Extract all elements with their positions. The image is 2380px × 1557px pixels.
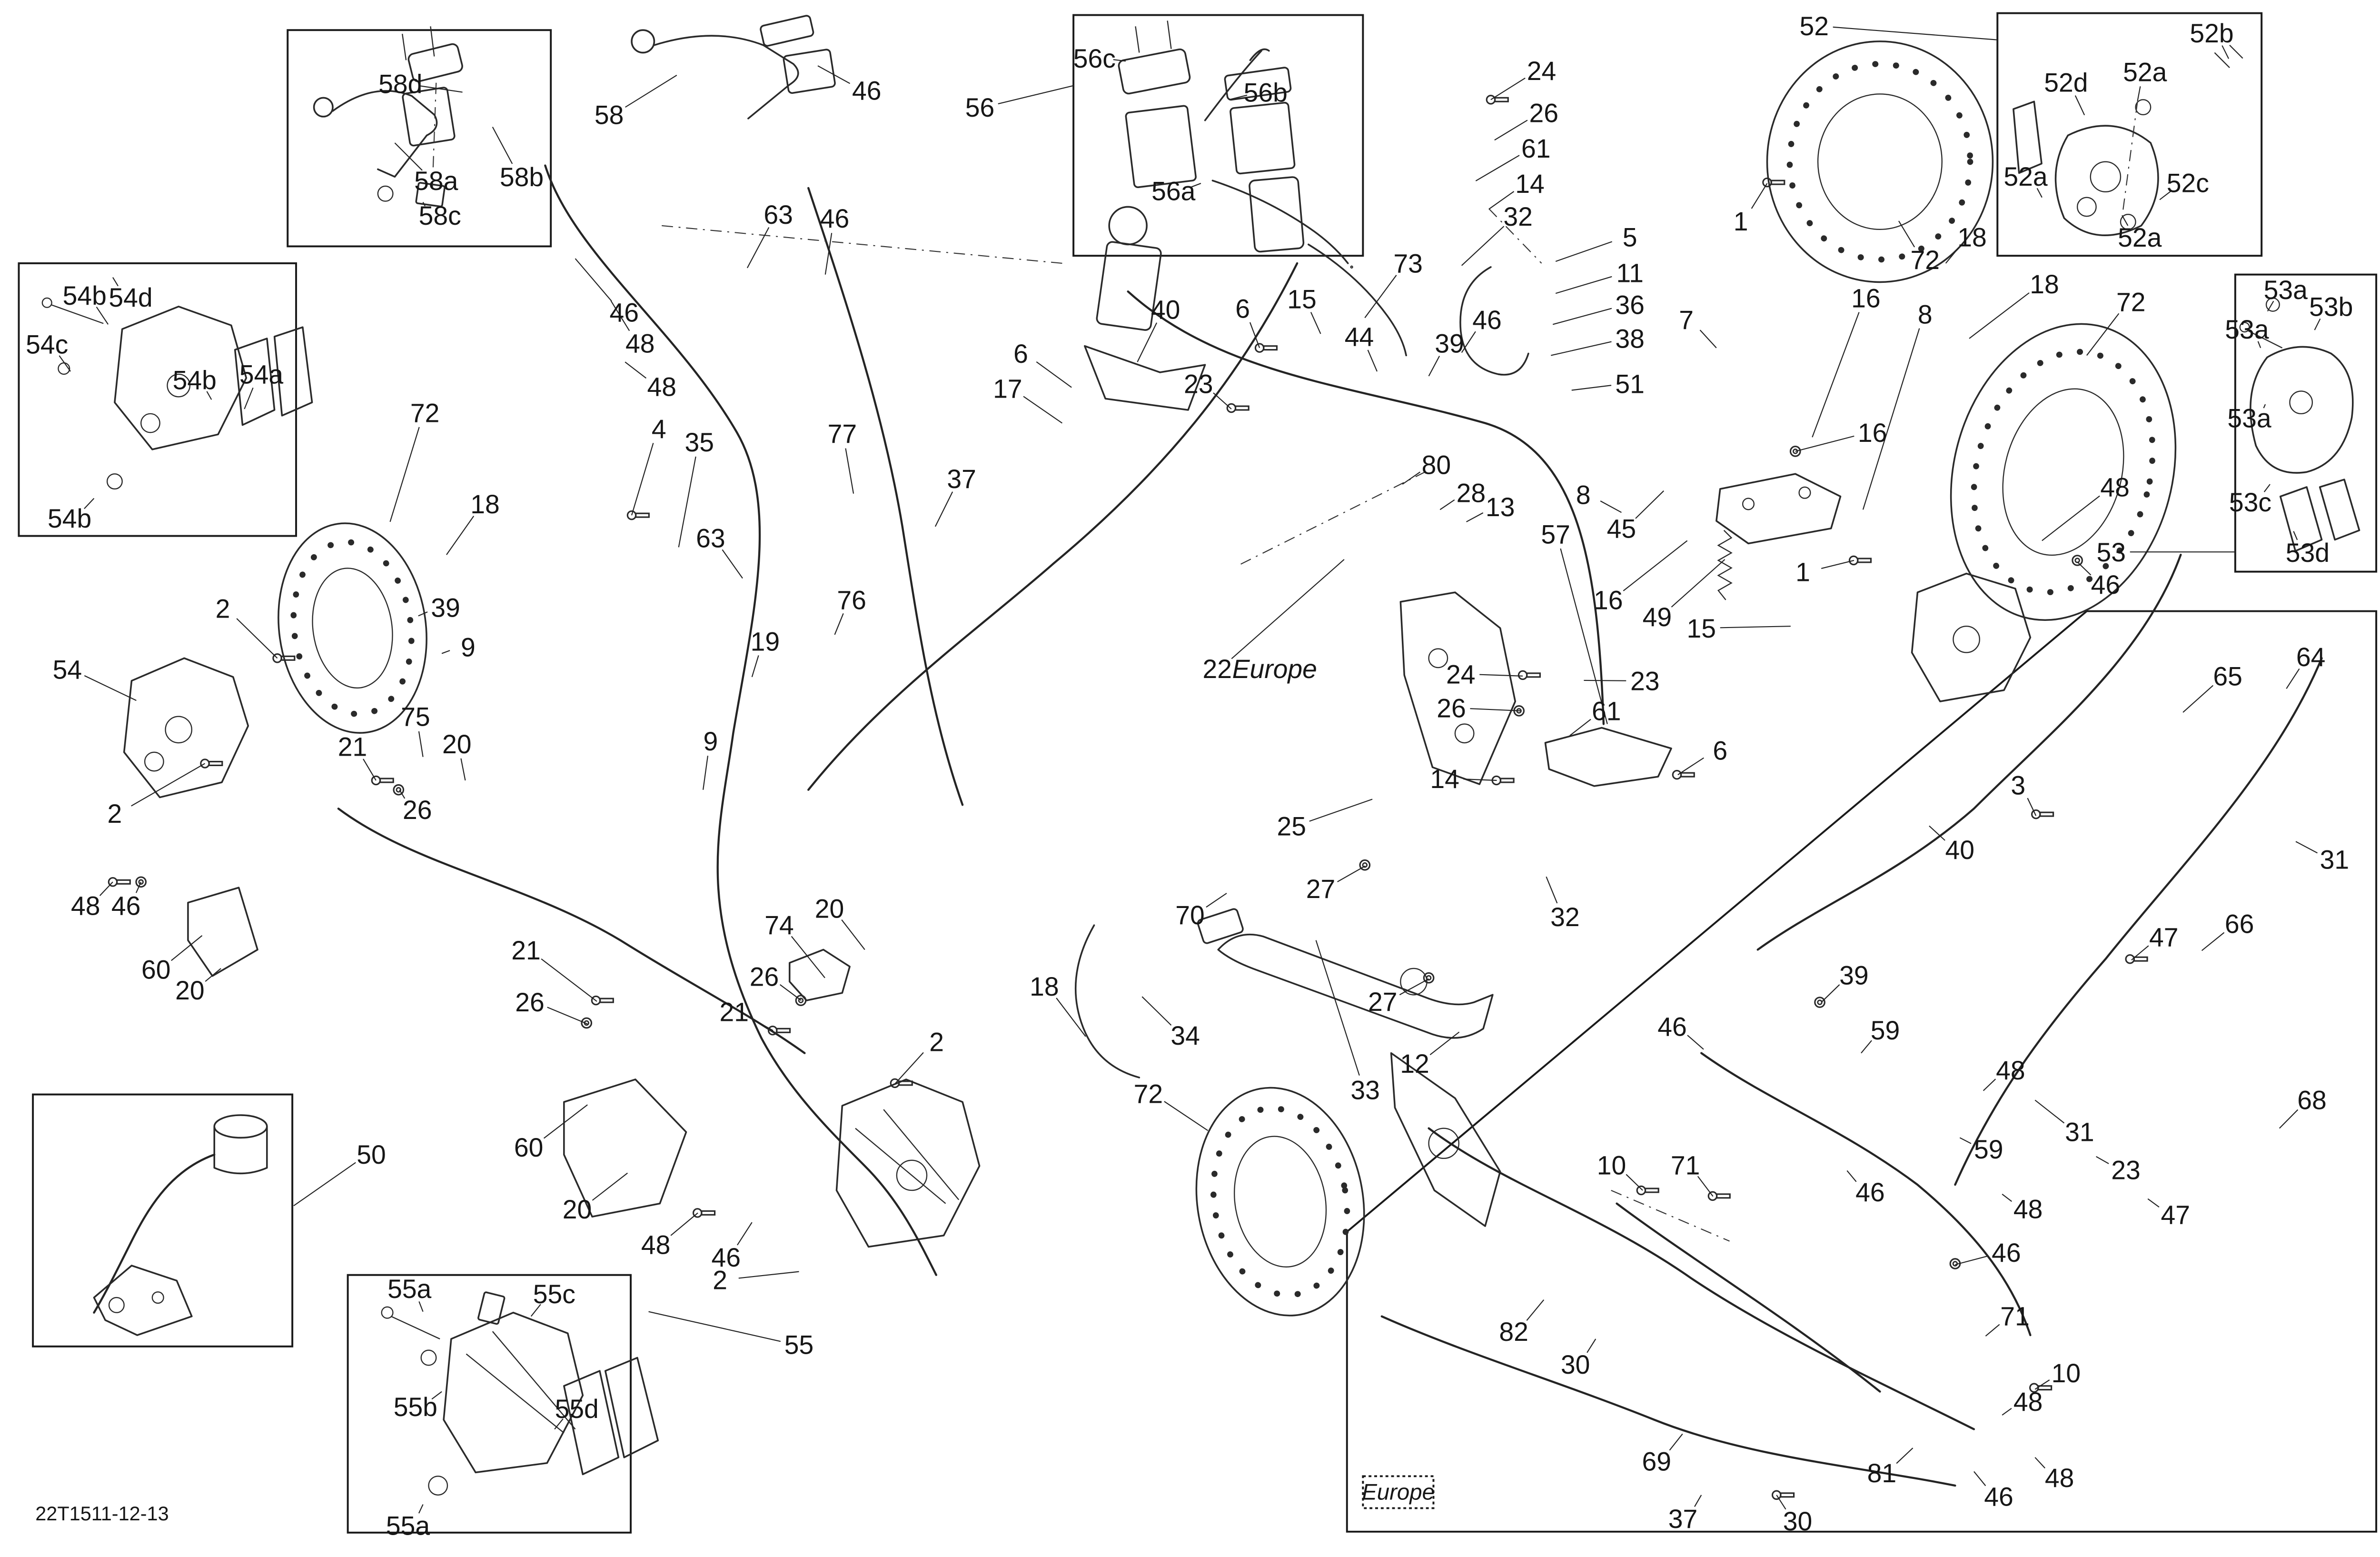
- callout-26-85: 26: [1529, 99, 1559, 128]
- callout-55b-130: 55b: [394, 1392, 437, 1422]
- callout-45-67: 45: [1607, 514, 1636, 544]
- callout-55d-131: 55d: [555, 1394, 599, 1424]
- leader-line-55-109: [649, 1312, 781, 1341]
- callout-57-68: 57: [1541, 519, 1570, 549]
- leader-line-76-37: [835, 613, 843, 635]
- europe-box-label: Europe: [1362, 1480, 1435, 1505]
- callout-54d-7: 54d: [109, 283, 152, 312]
- callout-39-25: 39: [431, 593, 460, 622]
- callout-58b-2: 58b: [500, 162, 544, 192]
- callout-12-92: 12: [1400, 1049, 1429, 1078]
- leader-line-80-50: [1402, 472, 1420, 484]
- leader-line-8-165: [1600, 501, 1621, 512]
- callout-54b-11: 54b: [48, 504, 91, 533]
- callout-6-43: 6: [1235, 294, 1250, 323]
- callout-14-87: 14: [1515, 169, 1545, 199]
- callout-53c-126: 53c: [2229, 488, 2271, 517]
- leader-line-56-112: [998, 86, 1074, 104]
- leader-line-72-65: [2087, 313, 2119, 355]
- callout-10-157: 10: [2052, 1358, 2081, 1388]
- callout-52d-118: 52d: [2044, 68, 2088, 98]
- callout-17-41: 17: [993, 374, 1022, 403]
- callout-6-76: 6: [1713, 736, 1727, 766]
- callout-2-108: 2: [713, 1265, 727, 1295]
- leader-line-46-81: [2077, 562, 2091, 575]
- callout-4-32: 4: [652, 414, 666, 444]
- callout-11-54: 11: [1616, 258, 1643, 288]
- leader-line-54-12: [84, 676, 136, 700]
- callout-38-56: 38: [1615, 324, 1645, 354]
- leader-line-46-107: [737, 1222, 752, 1245]
- callout-24-72: 24: [1446, 660, 1476, 689]
- front-left-caliper: [124, 658, 248, 797]
- spring-49: [1718, 530, 1732, 600]
- callout-73-49: 73: [1393, 249, 1423, 279]
- leader-line-9-39: [703, 756, 708, 789]
- callout-51-57: 51: [1615, 369, 1645, 399]
- leader-line-26-98: [547, 1007, 588, 1024]
- callout-46-20: 46: [111, 891, 141, 920]
- callout-63-34: 63: [696, 523, 725, 553]
- leader-line-74-101: [792, 936, 825, 978]
- callout-52a-121: 52a: [2003, 162, 2047, 191]
- callout-47-150: 47: [2161, 1200, 2191, 1229]
- leader-line-18-24: [446, 516, 474, 555]
- callout-26-74: 26: [1437, 694, 1466, 723]
- callout-58c-3: 58c: [419, 201, 461, 230]
- callout-30-155: 30: [1561, 1350, 1590, 1379]
- callout-20-17: 20: [442, 729, 472, 759]
- inset-50-content: [94, 1115, 267, 1335]
- callout-9-26: 9: [461, 632, 476, 662]
- leader-line-36-55: [1553, 309, 1612, 325]
- callout-27-89: 27: [1306, 874, 1336, 904]
- callout-53a-125: 53a: [2227, 403, 2271, 433]
- leader-line-31-144: [2035, 1100, 2064, 1123]
- callout-82-154: 82: [1499, 1317, 1528, 1347]
- leader-line-2-105: [895, 1053, 923, 1084]
- callout-54-12: 54: [53, 655, 82, 685]
- leader-line-31-136: [2296, 841, 2317, 853]
- brake-system-exploded-diagram: 58d58a58b58c584654b54d54c54b54a54b542221…: [0, 0, 2380, 1538]
- callout-72-63: 72: [1910, 245, 1940, 275]
- callout-25-88: 25: [1277, 811, 1307, 841]
- callout-46-140: 46: [1657, 1012, 1687, 1041]
- callout-32-83: 32: [1503, 202, 1533, 231]
- callout-31-144: 31: [2065, 1118, 2094, 1147]
- leader-line-15-71: [1720, 626, 1791, 628]
- part-code: 22T1511-12-13: [35, 1502, 169, 1525]
- callout-56-112: 56: [965, 93, 994, 122]
- callout-81-162: 81: [1867, 1458, 1897, 1488]
- callout-46-153: 46: [1992, 1238, 2021, 1268]
- callout-labels: 58d58a58b58c584654b54d54c54b54a54b542221…: [26, 11, 2353, 1538]
- callout-55c-129: 55c: [533, 1279, 575, 1309]
- callout-50-110: 50: [357, 1140, 386, 1169]
- leader-line-51-57: [1572, 385, 1611, 390]
- callout-33-93: 33: [1350, 1075, 1380, 1105]
- callout-39-46: 39: [1435, 329, 1464, 359]
- leader-line-38-56: [1551, 342, 1611, 356]
- leader-line-71-152: [1698, 1176, 1713, 1196]
- leader-line-13-52: [1467, 513, 1483, 522]
- callout-48-79: 48: [2100, 473, 2129, 502]
- leader-line-48-158: [2002, 1408, 2012, 1415]
- leader-line-15-44: [1311, 312, 1321, 334]
- callout-49-70: 49: [1643, 602, 1672, 632]
- brake-pedal: [1197, 908, 1493, 1038]
- leader-line-25-88: [1309, 799, 1372, 821]
- inset-box-caliper-52: [1997, 13, 2261, 256]
- callout-18-96: 18: [1030, 972, 1059, 1001]
- leader-line-19-36: [752, 655, 759, 677]
- callout-59-142: 59: [1871, 1016, 1900, 1045]
- callout-19-36: 19: [751, 627, 780, 657]
- callout-52a-117: 52a: [2123, 58, 2167, 87]
- seal-34: [1076, 925, 1140, 1078]
- callout-22-166: 22: [1203, 654, 1232, 684]
- callout-36-55: 36: [1615, 290, 1645, 320]
- leader-line-48-164: [2035, 1457, 2045, 1468]
- callout-58-4: 58: [595, 100, 624, 130]
- leader-line-60-21: [171, 936, 202, 961]
- brake-hoses: [338, 166, 2322, 1486]
- leader-line-72-95: [1164, 1101, 1208, 1130]
- callout-46-148: 46: [1855, 1178, 1885, 1207]
- leader-line-2-13: [237, 619, 277, 658]
- callout-31-136: 31: [2320, 845, 2349, 875]
- leader-line-33-93: [1316, 940, 1359, 1076]
- callout-13-52: 13: [1486, 492, 1515, 522]
- leader-line-46-140: [1687, 1035, 1704, 1049]
- callout-54c-8: 54c: [26, 329, 68, 359]
- callout-6-40: 6: [1013, 339, 1028, 369]
- leader-line-39-141: [1821, 985, 1839, 1002]
- leader-line-20-104: [842, 920, 865, 950]
- callout-27-91: 27: [1368, 987, 1398, 1017]
- leader-line-66-139: [2202, 933, 2224, 951]
- callout-20-104: 20: [815, 894, 844, 923]
- callout-56c-113: 56c: [1073, 44, 1116, 73]
- leader-line-24-72: [1479, 675, 1523, 676]
- leader-line-70-90: [1206, 893, 1227, 907]
- leader-line-52-111: [1833, 27, 1998, 40]
- leader-line-58-4: [625, 75, 677, 107]
- callout-37-38: 37: [947, 464, 976, 494]
- callout-58d-0: 58d: [378, 69, 422, 99]
- callout-48-158: 48: [2013, 1387, 2043, 1417]
- leader-line-37-38: [935, 492, 952, 527]
- callout-76-37: 76: [837, 586, 866, 615]
- leader-line-52a-117: [2138, 86, 2141, 101]
- callout-5-53: 5: [1623, 222, 1637, 252]
- callout-26-18: 26: [403, 795, 432, 825]
- callout-69-159: 69: [1642, 1447, 1672, 1476]
- leader-line-5-53: [1556, 242, 1612, 261]
- callout-30-161: 30: [1783, 1507, 1813, 1536]
- callout-10-151: 10: [1597, 1150, 1626, 1180]
- leader-line-49-70: [1671, 559, 1725, 607]
- callout-20-22: 20: [175, 976, 205, 1005]
- callout-26-98: 26: [515, 988, 545, 1017]
- callout-55a-128: 55a: [387, 1274, 431, 1304]
- callout-39-141: 39: [1839, 961, 1869, 990]
- callout-44-45: 44: [1345, 322, 1374, 352]
- callout-52a-120: 52a: [2118, 223, 2162, 252]
- europe-section-outline: [1347, 611, 2376, 1532]
- leader-line-27-89: [1338, 866, 1365, 882]
- callout-54a-10: 54a: [239, 360, 283, 389]
- callout-72-23: 72: [410, 399, 440, 428]
- leader-line-9-26: [442, 650, 450, 653]
- callout-26-102: 26: [750, 962, 779, 991]
- callout-56a-115: 56a: [1151, 177, 1195, 206]
- leader-line-46-148: [1847, 1171, 1856, 1182]
- callout-9-39: 9: [704, 727, 718, 756]
- leader-line-60-99: [544, 1105, 588, 1138]
- leader-line-1-59: [1752, 183, 1767, 209]
- leader-line-73-49: [1365, 275, 1396, 318]
- callout-21-97: 21: [511, 936, 541, 965]
- right-caliper: [1912, 574, 2031, 702]
- leader-line-32-83: [1462, 226, 1504, 266]
- callout-52-111: 52: [1799, 11, 1829, 41]
- leader-line-22-166: [1231, 559, 1344, 659]
- leader-line-26-102: [780, 985, 802, 1000]
- callout-60-99: 60: [514, 1133, 544, 1162]
- leader-line-35-33: [679, 457, 696, 547]
- leader-line-52d-118: [2075, 96, 2084, 115]
- leader-line-20-100: [592, 1173, 627, 1200]
- callout-64-133: 64: [2296, 642, 2325, 672]
- callout-61-75: 61: [1592, 697, 1621, 726]
- callout-8-165: 8: [1576, 480, 1591, 509]
- callout-48-19: 48: [71, 891, 100, 920]
- callout-18-64: 18: [2030, 269, 2059, 299]
- leader-line-17-41: [1023, 397, 1062, 423]
- callout-58a-1: 58a: [414, 166, 458, 196]
- callout-34-94: 34: [1170, 1021, 1200, 1050]
- leader-line-48-143: [1983, 1079, 1996, 1090]
- leader-line-26-74: [1470, 709, 1520, 711]
- leader-line-54a-10: [244, 388, 253, 409]
- callout-48-143: 48: [1996, 1056, 2025, 1085]
- leader-line-39-25: [418, 612, 427, 616]
- callout-54b-9: 54b: [173, 366, 217, 395]
- callout-53b-123: 53b: [2309, 292, 2353, 322]
- callout-54b-6: 54b: [63, 281, 107, 310]
- leader-line-39-46: [1429, 356, 1440, 376]
- leader-line-10-151: [1626, 1174, 1643, 1190]
- callout-72-65: 72: [2116, 288, 2146, 317]
- callout-55a-132: 55a: [386, 1511, 430, 1538]
- callout-16-69: 16: [1594, 586, 1623, 615]
- leader-line-82-154: [1527, 1300, 1544, 1320]
- callout-18-24: 18: [470, 489, 500, 519]
- callout-80-50: 80: [1422, 450, 1451, 479]
- leader-line-18-62: [1946, 248, 1959, 263]
- leader-line-68-145: [2280, 1110, 2298, 1128]
- callout-60-21: 60: [141, 955, 171, 985]
- guard-bracket-61: [1545, 728, 1671, 786]
- leader-line-81-162: [1896, 1448, 1913, 1463]
- callout-46-28: 46: [820, 204, 850, 233]
- callout-46-5: 46: [852, 76, 882, 105]
- callout-32-82: 32: [1550, 902, 1580, 932]
- inset-box-reservoir-50: [33, 1095, 292, 1347]
- callout-46-81: 46: [2091, 570, 2121, 599]
- callout-21-15: 21: [338, 732, 367, 762]
- leader-line-24-84: [1491, 78, 1525, 100]
- callout-48-31: 48: [647, 372, 676, 401]
- leader-line-18-96: [1056, 998, 1086, 1037]
- callout-65-134: 65: [2213, 662, 2242, 691]
- callout-46-29: 46: [609, 298, 639, 327]
- leader-line-63-27: [747, 227, 769, 268]
- leader-line-18-64: [1969, 293, 2029, 339]
- callout-3-135: 3: [2011, 771, 2025, 800]
- callout-2-105: 2: [929, 1028, 944, 1057]
- callout-75-16: 75: [401, 702, 430, 731]
- callout-20-100: 20: [563, 1195, 592, 1224]
- leader-line-71-156: [1985, 1325, 1999, 1336]
- bracket-74: [790, 949, 850, 1000]
- callout-15-44: 15: [1287, 285, 1317, 314]
- leader-line-75-16: [419, 731, 423, 757]
- leader-line-48-106: [671, 1213, 698, 1235]
- leader-line-48-79: [2042, 496, 2100, 540]
- leader-line-4-32: [632, 443, 653, 515]
- leader-line-69-159: [1670, 1434, 1683, 1450]
- leader-line-32-82: [1546, 877, 1557, 903]
- callout-1-59: 1: [1734, 207, 1748, 236]
- upper-bracket: [1716, 474, 1841, 543]
- leader-line-21-97: [541, 959, 597, 1001]
- callout-23-147: 23: [2111, 1155, 2141, 1185]
- leader-line-6-40: [1036, 362, 1071, 388]
- callout-16-66: 16: [1858, 418, 1887, 448]
- callout-35-33: 35: [684, 428, 714, 457]
- leader-line-46-153: [1955, 1256, 1988, 1265]
- callout-37-160: 37: [1668, 1504, 1698, 1534]
- callout-63-27: 63: [764, 200, 793, 230]
- callout-59-146: 59: [1974, 1135, 2003, 1164]
- callout-15-71: 15: [1686, 614, 1716, 643]
- callout-68-145: 68: [2297, 1085, 2326, 1115]
- callout-46-163: 46: [1984, 1482, 2013, 1512]
- callout-2-13: 2: [216, 594, 230, 623]
- leader-line-58b-2: [493, 127, 512, 164]
- leader-line-28-51: [1440, 500, 1454, 510]
- callout-28-51: 28: [1457, 479, 1486, 508]
- callout-23-73: 23: [1630, 666, 1660, 696]
- leader-line-11-54: [1556, 277, 1612, 293]
- callout-23-48: 23: [1184, 369, 1213, 399]
- callout-7-58: 7: [1679, 305, 1694, 335]
- leader-line-45-67: [1636, 491, 1664, 519]
- callout-40-137: 40: [1945, 835, 1974, 865]
- leader-line-61-86: [1476, 155, 1519, 181]
- europe-inline-label: Europe: [1232, 654, 1317, 684]
- leader-line-16-69: [1623, 540, 1687, 590]
- callout-66-139: 66: [2225, 909, 2254, 939]
- callout-53a-124: 53a: [2225, 315, 2269, 344]
- leader-line-72-23: [390, 427, 419, 522]
- leader-line-20-17: [461, 759, 465, 780]
- callout-48-30: 48: [625, 329, 655, 359]
- callout-52b-116: 52b: [2190, 19, 2233, 48]
- leader-line-72-63: [1899, 221, 1914, 247]
- callout-53a-122: 53a: [2264, 275, 2308, 305]
- leader-line-1-78: [1821, 560, 1854, 569]
- callout-24-84: 24: [1527, 56, 1557, 86]
- leader-line-47-150: [2148, 1199, 2159, 1207]
- leader-line-23-48: [1213, 393, 1231, 409]
- callout-8-61: 8: [1918, 299, 1933, 329]
- leader-line-7-58: [1700, 330, 1716, 348]
- inset-box-master-cyl-56: [1073, 15, 1363, 256]
- callout-48-164: 48: [2045, 1463, 2074, 1493]
- callout-16-60: 16: [1851, 284, 1881, 313]
- callout-53-80: 53: [2096, 538, 2125, 567]
- callout-77-35: 77: [828, 419, 857, 449]
- callout-71-152: 71: [1671, 1150, 1700, 1180]
- leader-line-50-110: [294, 1163, 356, 1206]
- leader-line-23-147: [2096, 1157, 2109, 1164]
- leader-line-23-73: [1584, 680, 1626, 681]
- callout-72-95: 72: [1134, 1079, 1163, 1108]
- callout-47-138: 47: [2149, 922, 2179, 952]
- callout-71-156: 71: [2000, 1302, 2030, 1331]
- callout-40-42: 40: [1151, 295, 1180, 324]
- callout-52c-119: 52c: [2167, 169, 2209, 198]
- callout-48-149: 48: [2013, 1194, 2043, 1224]
- front-lever-assembly: [632, 15, 835, 119]
- inset-56-content: [1118, 20, 1352, 268]
- leader-line-21-15: [363, 759, 376, 780]
- callout-53d-127: 53d: [2286, 538, 2330, 568]
- leader-line-16-66: [1795, 436, 1854, 451]
- callout-21-103: 21: [720, 998, 749, 1027]
- callout-56b-114: 56b: [1244, 78, 1288, 107]
- leader-line-48-149: [2002, 1194, 2012, 1201]
- callout-18-62: 18: [1957, 222, 1987, 252]
- leader-line-65-134: [2183, 686, 2213, 712]
- leader-line-63-34: [722, 549, 743, 578]
- brake-disc-bottom-center: [1179, 1074, 1382, 1329]
- callout-55-109: 55: [784, 1330, 814, 1360]
- guard-bracket-left: [188, 888, 258, 976]
- callout-48-106: 48: [641, 1230, 671, 1259]
- leader-line-2-108: [739, 1272, 799, 1278]
- leader-line-59-146: [1960, 1138, 1971, 1143]
- leader-line-34-94: [1142, 997, 1171, 1025]
- callout-61-86: 61: [1521, 134, 1551, 163]
- leader-line-16-60: [1812, 312, 1859, 438]
- leader-line-48-31: [625, 362, 646, 378]
- callout-1-78: 1: [1795, 557, 1810, 587]
- callout-14-77: 14: [1430, 764, 1459, 794]
- callout-2-14: 2: [108, 799, 122, 828]
- callout-70-90: 70: [1175, 900, 1205, 930]
- callout-46-47: 46: [1472, 305, 1502, 335]
- leader-line-2-14: [131, 763, 205, 806]
- leader-line-77-35: [845, 449, 853, 494]
- inset-box-caliper-54: [19, 263, 296, 536]
- leader-line-44-45: [1368, 350, 1377, 371]
- callout-74-101: 74: [764, 910, 794, 940]
